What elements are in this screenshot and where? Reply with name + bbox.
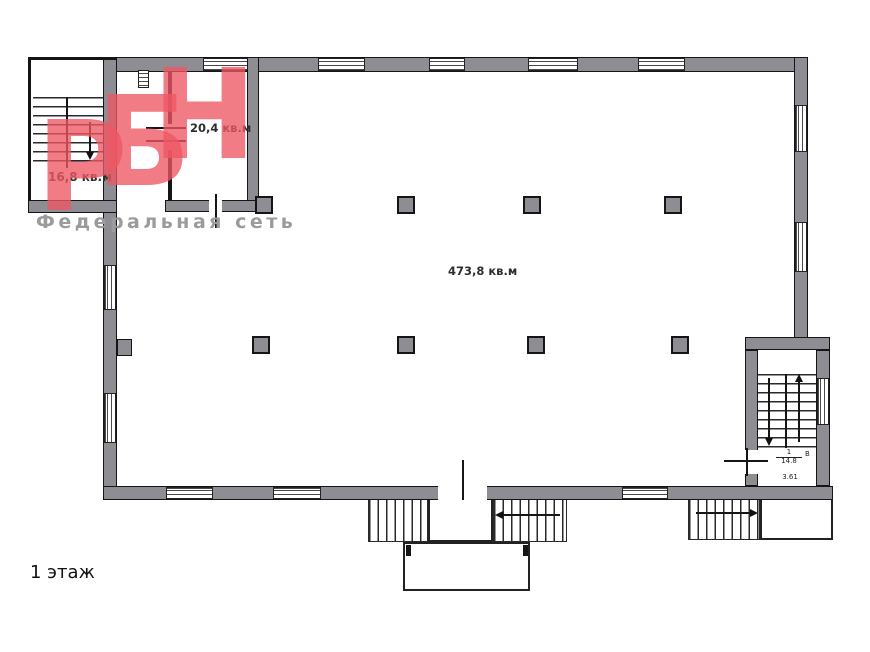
column bbox=[397, 336, 415, 354]
column bbox=[664, 196, 682, 214]
watermark-logo-letter: Н bbox=[152, 66, 257, 166]
column bbox=[397, 196, 415, 214]
stairwell-arrow-down-icon bbox=[765, 438, 773, 446]
window-bottom-3 bbox=[622, 487, 668, 499]
side-entrance-arrow-right-icon bbox=[750, 509, 758, 517]
wall-right bbox=[794, 57, 808, 340]
stairwell-door-axis-v bbox=[746, 448, 748, 476]
window-bottom-1 bbox=[166, 487, 213, 499]
floor-plan-canvas: 16,8 кв.м 20,4 кв.м 473,8 кв.м 1 14.8 В … bbox=[0, 0, 870, 652]
stair-lobby-height-mark: 3.61 bbox=[770, 474, 810, 482]
hall-area-label: 473,8 кв.м bbox=[448, 264, 517, 278]
window-right-1 bbox=[795, 105, 807, 152]
entrance-arrow-line bbox=[502, 514, 560, 516]
side-entrance-landing bbox=[760, 500, 833, 540]
window-top-5 bbox=[638, 58, 685, 71]
window-bottom-2 bbox=[273, 487, 321, 499]
window-left-2 bbox=[104, 393, 116, 443]
stair-lobby-area: 14.8 bbox=[776, 458, 802, 466]
window-top-2 bbox=[318, 58, 365, 71]
watermark-subtitle: Федеральная сеть bbox=[36, 211, 296, 233]
side-entrance-arrow-line bbox=[696, 512, 752, 514]
column bbox=[527, 336, 545, 354]
pilaster-left-wall bbox=[117, 339, 132, 356]
stairwell-wall-top bbox=[745, 337, 830, 350]
column bbox=[523, 196, 541, 214]
stairwell-staircase-treads bbox=[758, 374, 816, 448]
stairwell-arrow-up-line bbox=[798, 380, 800, 442]
stairwell-arrow-up-icon bbox=[795, 374, 803, 382]
window-left-1 bbox=[104, 265, 116, 310]
floor-label: 1 этаж bbox=[30, 562, 95, 583]
stairwell-arrow-down-line bbox=[768, 378, 770, 440]
entrance-platform bbox=[403, 542, 530, 591]
stair-lobby-room-tag: 1 14.8 bbox=[776, 449, 802, 465]
entrance-steps-right bbox=[493, 500, 567, 542]
annex-wall-top bbox=[28, 57, 117, 60]
annex-wall-left bbox=[28, 57, 31, 213]
column bbox=[252, 336, 270, 354]
entrance-steps-left bbox=[368, 500, 428, 542]
window-right-2 bbox=[795, 222, 807, 272]
entrance-landing-center bbox=[428, 500, 493, 542]
platform-tick-left bbox=[406, 545, 411, 556]
platform-tick-right bbox=[523, 545, 528, 556]
stairwell-stair-divider bbox=[785, 374, 787, 448]
side-entrance-steps bbox=[688, 500, 760, 540]
entrance-arrow-left-icon bbox=[495, 511, 503, 519]
window-top-3 bbox=[429, 58, 465, 71]
column bbox=[671, 336, 689, 354]
stair-lobby-side-mark: В bbox=[805, 451, 810, 459]
stairwell-window bbox=[817, 378, 829, 425]
window-top-4 bbox=[528, 58, 578, 71]
